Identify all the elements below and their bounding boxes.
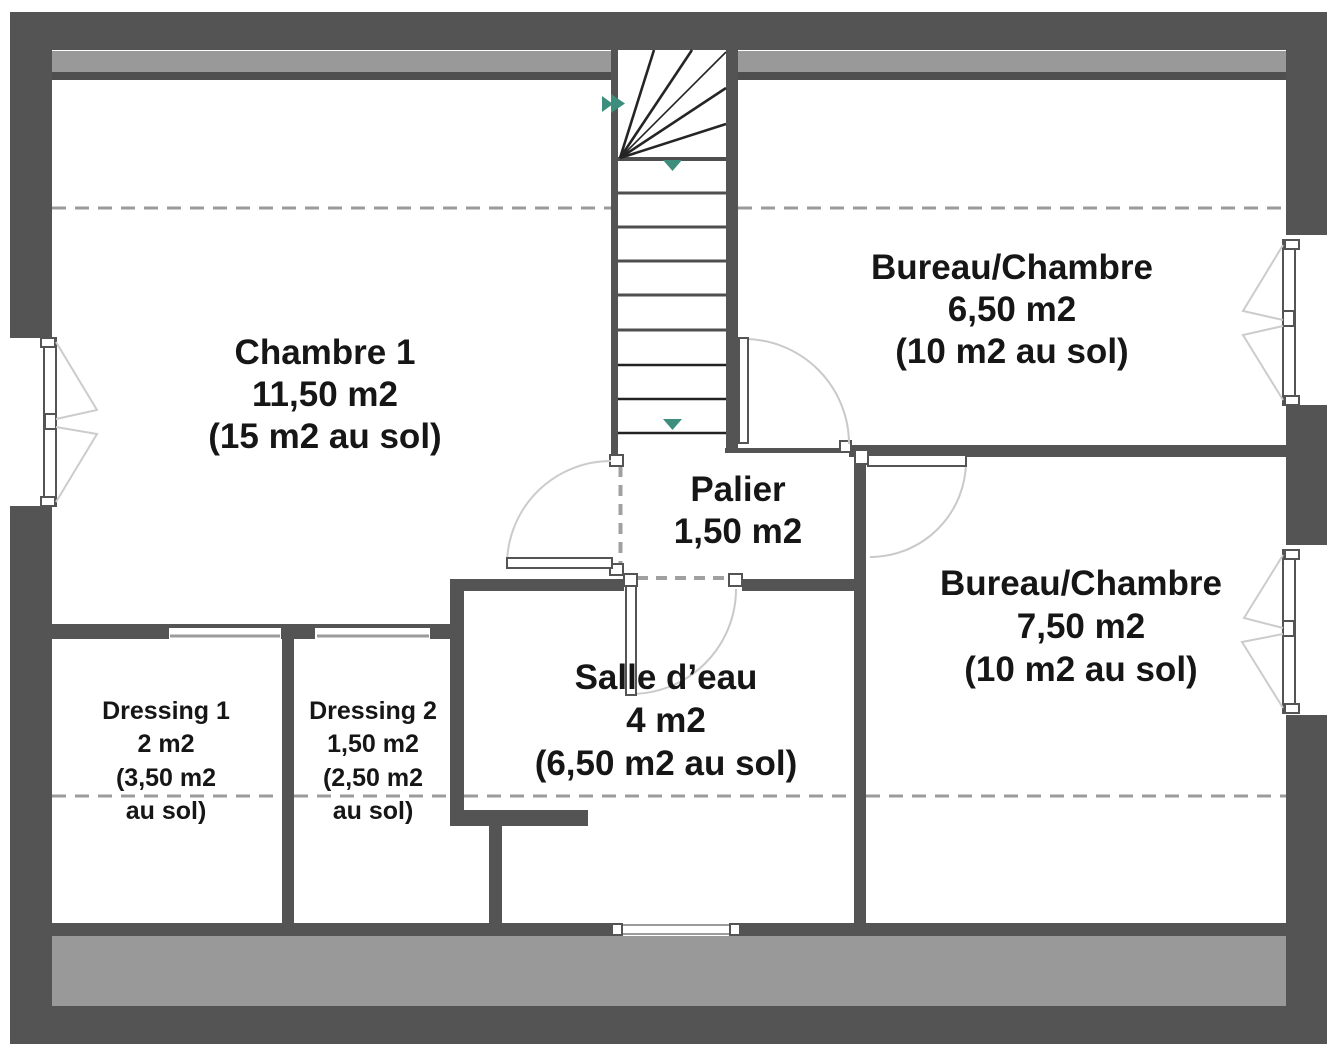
svg-text:1,50 m2: 1,50 m2 <box>327 730 419 758</box>
svg-text:(15 m2 au sol): (15 m2 au sol) <box>208 417 441 456</box>
svg-text:2 m2: 2 m2 <box>138 730 195 758</box>
svg-text:Palier: Palier <box>690 470 786 509</box>
svg-text:Chambre 1: Chambre 1 <box>235 333 416 372</box>
svg-text:Bureau/Chambre: Bureau/Chambre <box>871 248 1153 287</box>
svg-text:Dressing 1: Dressing 1 <box>102 697 230 725</box>
svg-text:6,50 m2: 6,50 m2 <box>948 290 1076 329</box>
svg-text:(2,50 m2: (2,50 m2 <box>323 764 423 792</box>
svg-text:(10 m2 au sol): (10 m2 au sol) <box>895 332 1128 371</box>
svg-text:1,50 m2: 1,50 m2 <box>674 512 802 551</box>
svg-text:Salle d’eau: Salle d’eau <box>575 658 758 697</box>
svg-text:7,50 m2: 7,50 m2 <box>1017 607 1145 646</box>
svg-text:au sol): au sol) <box>126 797 207 825</box>
svg-text:(10 m2 au sol): (10 m2 au sol) <box>964 650 1197 689</box>
svg-text:Dressing 2: Dressing 2 <box>309 697 437 725</box>
svg-text:Bureau/Chambre: Bureau/Chambre <box>940 564 1222 603</box>
svg-text:au sol): au sol) <box>333 797 414 825</box>
svg-text:(3,50 m2: (3,50 m2 <box>116 764 216 792</box>
svg-text:(6,50 m2 au sol): (6,50 m2 au sol) <box>535 744 798 783</box>
svg-text:11,50 m2: 11,50 m2 <box>252 375 398 414</box>
svg-text:4 m2: 4 m2 <box>626 701 706 740</box>
